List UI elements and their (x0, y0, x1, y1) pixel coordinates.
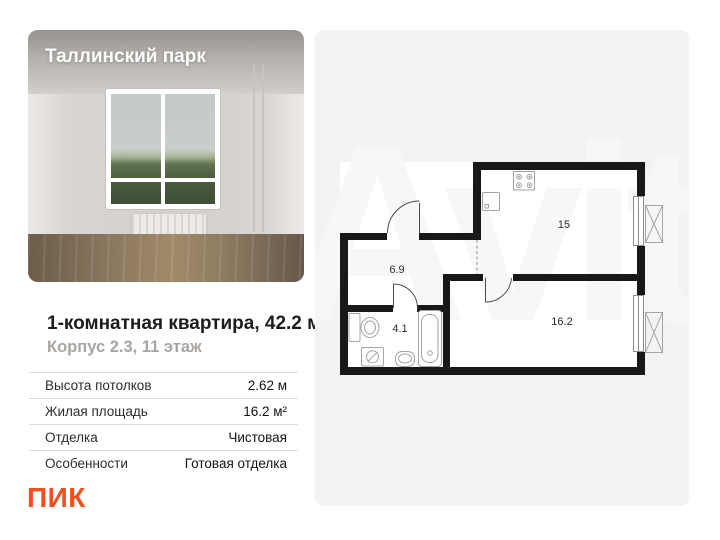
complex-name-overlay: Таллинский парк (45, 46, 206, 68)
window-pane (111, 94, 161, 204)
entry-door (388, 201, 420, 233)
photo-floor (28, 234, 304, 282)
spec-row-ceiling-height: Высота потолков 2.62 м (29, 372, 298, 398)
spec-value: 16.2 м² (243, 404, 287, 419)
photo-radiator (132, 214, 206, 235)
kitchen-sink-icon (483, 193, 500, 211)
window-pane (165, 94, 215, 204)
apartment-photo: Таллинский парк (28, 30, 304, 282)
kitchen-window (634, 197, 644, 246)
developer-logo: ПИК (27, 482, 86, 514)
bedroom-window (634, 296, 644, 352)
listing-title: 1-комнатная квартира, 42.2 м² (47, 313, 328, 335)
photo-pipes (253, 64, 264, 232)
spec-row-features: Особенности Готовая отделка (29, 450, 298, 476)
washing-machine-icon (362, 348, 384, 367)
spec-label: Отделка (45, 430, 98, 445)
specs-table: Высота потолков 2.62 м Жилая площадь 16.… (29, 372, 298, 476)
room-area-hallway: 6.9 (389, 264, 404, 276)
spec-label: Высота потолков (45, 378, 152, 393)
spec-value: 2.62 м (248, 378, 287, 393)
stove-icon (514, 172, 535, 191)
spec-row-finishing: Отделка Чистовая (29, 424, 298, 450)
toilet-icon (349, 314, 379, 342)
bathroom-door (394, 284, 418, 308)
room-area-bathroom: 4.1 (392, 323, 407, 335)
bathtub-icon (419, 311, 442, 367)
bedroom-door (486, 278, 512, 302)
spec-value: Готовая отделка (185, 456, 287, 471)
window-rail (108, 178, 218, 182)
spec-value: Чистовая (228, 430, 287, 445)
spec-label: Особенности (45, 456, 128, 471)
spec-row-living-area: Жилая площадь 16.2 м² (29, 398, 298, 424)
spec-label: Жилая площадь (45, 404, 148, 419)
listing-subtitle: Корпус 2.3, 11 этаж (47, 338, 202, 357)
floor-plan-panel: Avito (315, 30, 689, 506)
photo-window (106, 89, 220, 209)
floor-plan: 15 6.9 4.1 16.2 (340, 162, 665, 375)
room-area-bedroom: 16.2 (551, 316, 572, 328)
window-hatch-box (646, 206, 663, 243)
window-hatch-box (646, 313, 663, 353)
room-area-kitchen: 15 (558, 219, 570, 231)
bathroom-sink-icon (396, 352, 415, 367)
